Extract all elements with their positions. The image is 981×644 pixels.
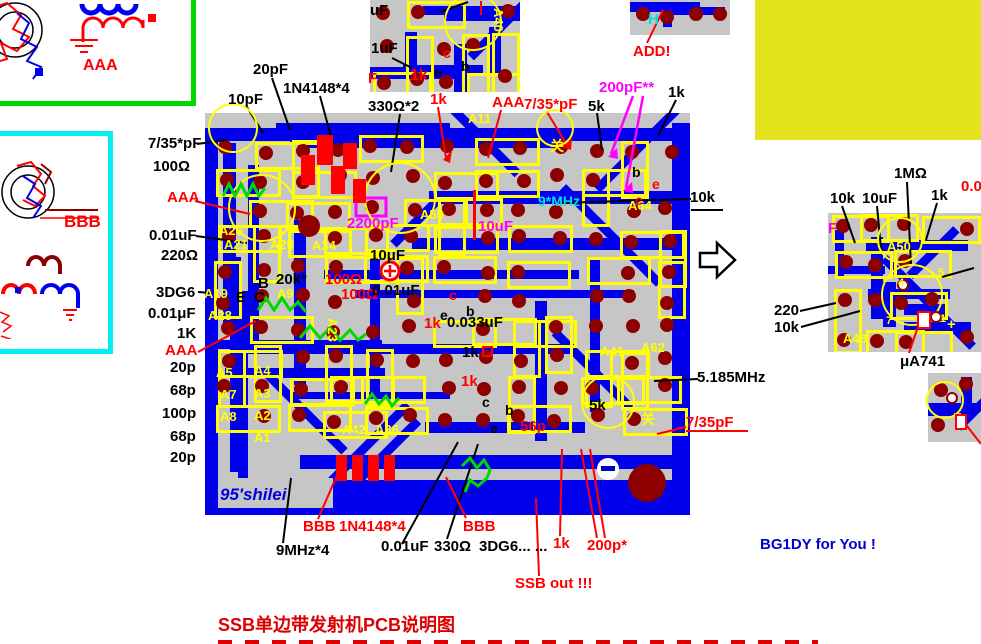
pcb-decor	[512, 294, 526, 308]
pcb-decor	[402, 319, 416, 333]
pcb-decor	[221, 321, 235, 335]
pcb-decor	[479, 350, 493, 364]
schematic-box-aaa	[0, 0, 196, 106]
bbb-box-label: BBB	[64, 212, 101, 232]
board-text: A59	[420, 208, 444, 221]
callout-label: AAA	[165, 343, 198, 358]
board-text: A21	[224, 238, 248, 251]
pcb-fragment-bottom-right	[928, 373, 981, 442]
callout-label: 7/35*pF	[524, 97, 577, 112]
callout-label: AAA	[492, 95, 525, 110]
board-text: c	[449, 288, 457, 302]
pcb-decor	[406, 169, 420, 183]
pcb-decor	[511, 265, 525, 279]
pcb-decor	[589, 319, 603, 333]
pcb-decor	[713, 7, 727, 21]
pcb-decor	[253, 175, 267, 189]
pcb-decor	[838, 293, 852, 307]
board-text: e	[652, 177, 660, 191]
pcb-decor	[292, 408, 306, 422]
pcb-decor	[296, 175, 310, 189]
pcb-decor	[253, 204, 267, 218]
board-text: +	[947, 317, 956, 332]
yellow-cover-block	[755, 0, 981, 140]
board-text: 100Ω	[325, 272, 362, 287]
board-text: 关	[550, 139, 564, 153]
pcb-decor	[296, 350, 310, 364]
pcb-decor	[554, 381, 568, 395]
callout-label: 100Ω	[153, 159, 190, 174]
pcb-decor	[400, 140, 414, 154]
pcb-decor	[868, 258, 882, 272]
board-text: A36	[375, 423, 399, 436]
board-text: A29	[270, 238, 294, 251]
pcb-decor	[328, 295, 342, 309]
pcb-decor	[218, 140, 232, 154]
pcb-decor	[663, 234, 677, 248]
pcb-decor	[550, 168, 564, 182]
board-text: b	[632, 165, 641, 179]
pcb-decor	[370, 353, 384, 367]
callout-label: 3DG6	[156, 285, 195, 300]
pcb-decor	[439, 353, 453, 367]
callout-label: 0.01uF	[381, 539, 429, 554]
board-text: E	[236, 290, 246, 305]
board-text: 4	[898, 278, 904, 289]
pcb-decor	[959, 377, 973, 391]
pcb-decor	[590, 144, 604, 158]
callout-label: 220	[774, 303, 799, 318]
board-text: A62	[641, 341, 665, 354]
callout-label: 7/35pF	[686, 415, 734, 430]
board-text: 1	[940, 314, 946, 325]
pcb-decor	[481, 266, 495, 280]
board-text: c	[635, 193, 643, 207]
callout-label: 5.185MHz	[697, 370, 765, 385]
pcb-decor	[296, 144, 310, 158]
board-text: C	[254, 290, 265, 305]
pcb-decor	[327, 415, 341, 429]
pcb-decor	[514, 354, 528, 368]
pcb-decor	[366, 325, 380, 339]
pcb-decor	[658, 201, 672, 215]
board-text: A42	[342, 423, 366, 436]
callout-label: 20p	[170, 450, 196, 465]
callout-label: 220Ω	[161, 248, 198, 263]
pcb-decor	[590, 289, 604, 303]
callout-label: 10uF	[862, 191, 897, 206]
board-text: A5	[216, 366, 233, 379]
pcb-decor	[626, 319, 640, 333]
callout-label: 0.01uF	[149, 228, 197, 243]
pcb-decor	[363, 139, 377, 153]
callout-label: μA741	[900, 354, 945, 369]
board-text: A19	[204, 287, 228, 300]
board-text: A2	[254, 409, 271, 422]
callout-label: 9MHz*4	[276, 543, 329, 558]
pcb-decor	[254, 320, 268, 334]
right-arrow-icon	[700, 243, 735, 277]
pcb-decor	[899, 335, 913, 349]
callout-label: 20p	[170, 360, 196, 375]
callout-label: 0.01μF	[148, 306, 196, 321]
callout-label: 100p	[162, 406, 196, 421]
pcb-decor	[517, 174, 531, 188]
board-text: e	[434, 65, 442, 79]
pcb-decor	[553, 231, 567, 245]
coil-schematic-drawing	[0, 0, 181, 91]
pcb-decor	[689, 7, 703, 21]
pcb-decor	[480, 203, 494, 217]
pcb-decor	[894, 296, 908, 310]
signature-text: BG1DY for You !	[760, 536, 876, 553]
pcb-decor	[931, 418, 945, 432]
pcb-decor	[404, 229, 418, 243]
pcb-decor	[334, 380, 348, 394]
board-text: 9*MHz	[538, 194, 580, 208]
pcb-decor	[294, 382, 308, 396]
pcb-decor	[476, 413, 490, 427]
board-text: c	[482, 395, 490, 409]
pcb-decor	[660, 10, 674, 24]
pcb-decor	[925, 292, 939, 306]
board-text: A34	[312, 239, 336, 252]
pcb-decor	[331, 143, 345, 157]
callout-label: 330Ω*2	[368, 99, 419, 114]
coil-schematic-drawing	[0, 136, 98, 339]
board-text: 5	[938, 268, 944, 279]
pcb-decor	[836, 219, 850, 233]
pcb-decor	[868, 293, 882, 307]
callout-label: 330Ω	[434, 539, 471, 554]
board-text: A41	[600, 345, 624, 358]
board-text: 2200pF	[347, 216, 399, 231]
board-text: A9	[277, 287, 294, 300]
board-text: uF	[370, 3, 388, 18]
board-text: 7	[886, 316, 892, 327]
pcb-decor	[440, 139, 454, 153]
pcb-decor	[660, 296, 674, 310]
callout-label: 10k	[830, 191, 855, 206]
board-text: 1k	[424, 316, 441, 331]
board-text: A28	[208, 309, 232, 322]
pcb-decor	[587, 257, 652, 285]
pcb-decor	[864, 218, 878, 232]
callout-label: 1k	[668, 85, 685, 100]
callout-label: 1MΩ	[894, 166, 927, 181]
pcb-decor	[625, 356, 639, 370]
cropped-caption-line	[218, 640, 818, 644]
pcb-decor	[437, 260, 451, 274]
board-text: A3	[254, 387, 271, 400]
pcb-decor	[934, 383, 948, 397]
board-text: 关	[641, 412, 655, 426]
callout-label: 7/35*pF	[148, 136, 201, 151]
board-text: A7	[220, 388, 237, 401]
pcb-decor	[467, 73, 520, 92]
callout-label: ADD!	[633, 44, 671, 59]
callout-label: 200p*	[587, 538, 627, 553]
pcb-decor	[366, 171, 380, 185]
callout-label: 0.0	[961, 179, 981, 194]
board-text: 1k	[462, 345, 479, 360]
aaa-box-label: AAA	[83, 57, 118, 75]
board-text: A40	[492, 8, 505, 32]
pcb-decor	[513, 320, 541, 378]
pcb-fragment-add	[630, 0, 730, 35]
board-text: A8	[220, 410, 237, 423]
pcb-decor	[665, 145, 679, 159]
board-text: A11	[468, 112, 491, 125]
board-text: c	[443, 46, 451, 60]
pcb-decor	[617, 376, 682, 404]
pcb-decor	[622, 289, 636, 303]
pcb-documentation-page: AAA BBB SSB单边带发射机PCB说明图 BG1DY for You !	[0, 0, 981, 644]
callout-label: 1k	[430, 92, 447, 107]
callout-label: 1k	[931, 188, 948, 203]
pcb-decor	[466, 38, 480, 52]
board-text: b	[505, 403, 514, 417]
board-text: 56p	[520, 419, 546, 434]
board-text: 10uF	[478, 219, 513, 234]
board-text: A1	[254, 431, 271, 444]
pcb-decor	[478, 289, 492, 303]
pcb-decor	[259, 146, 273, 160]
callout-label: 1N4148*4	[339, 519, 406, 534]
pcb-decor	[290, 206, 304, 220]
callout-label: 68p	[170, 383, 196, 398]
pcb-decor	[549, 320, 563, 334]
board-text: 10μF	[370, 248, 405, 263]
callout-label: 10k	[774, 320, 799, 335]
callout-label: 3DG6... ...	[479, 539, 547, 554]
board-text: 0.01uF	[372, 283, 420, 298]
pcb-decor	[218, 265, 232, 279]
board-text: A50	[887, 240, 911, 253]
board-text: b	[461, 59, 470, 73]
board-text: H	[648, 12, 659, 27]
pcb-decor	[296, 288, 310, 302]
pcb-decor	[585, 381, 599, 395]
board-text: 1k	[410, 68, 428, 84]
page-caption: SSB单边带发射机PCB说明图	[218, 611, 455, 637]
pcb-decor	[662, 265, 676, 279]
board-text: 1k	[461, 374, 478, 389]
callout-label: BBB	[463, 519, 496, 534]
schematic-box-bbb	[0, 131, 113, 354]
board-text: e	[490, 421, 498, 435]
callout-label: 1N4148*4	[283, 81, 350, 96]
callout-label: BBB	[303, 519, 336, 534]
pcb-decor	[406, 354, 420, 368]
board-text: 1uF	[371, 41, 398, 56]
board-text: A48	[843, 332, 867, 345]
board-text: A4	[254, 364, 271, 377]
pcb-decor	[361, 376, 426, 404]
board-text: 95'shilei	[220, 486, 286, 503]
callout-label: 68p	[170, 429, 196, 444]
board-text: 20k*	[276, 272, 307, 287]
callout-label: SSB out !!!	[515, 576, 592, 591]
callout-label: AAA	[167, 190, 200, 205]
callout-label: 200pF**	[599, 80, 654, 95]
pcb-decor	[329, 349, 343, 363]
pcb-decor	[442, 381, 456, 395]
callout-label: 20pF	[253, 62, 288, 77]
pcb-decor	[621, 266, 635, 280]
pcb-decor	[511, 203, 525, 217]
board-text: F	[368, 71, 377, 86]
callout-label: 1K	[177, 326, 196, 341]
board-text: 5k	[589, 398, 606, 413]
board-text: A26	[219, 224, 243, 237]
callout-label: 1k	[553, 536, 570, 551]
pcb-decor	[897, 217, 911, 231]
callout-label: 10pF	[228, 92, 263, 107]
board-text: A23	[326, 318, 339, 342]
board-text: F	[828, 221, 837, 236]
board-text: 0.033uF	[447, 315, 503, 330]
callout-label: 5k	[588, 99, 605, 114]
pcb-decor	[365, 200, 379, 214]
callout-label: 10k	[690, 190, 715, 205]
pcb-decor	[547, 414, 561, 428]
